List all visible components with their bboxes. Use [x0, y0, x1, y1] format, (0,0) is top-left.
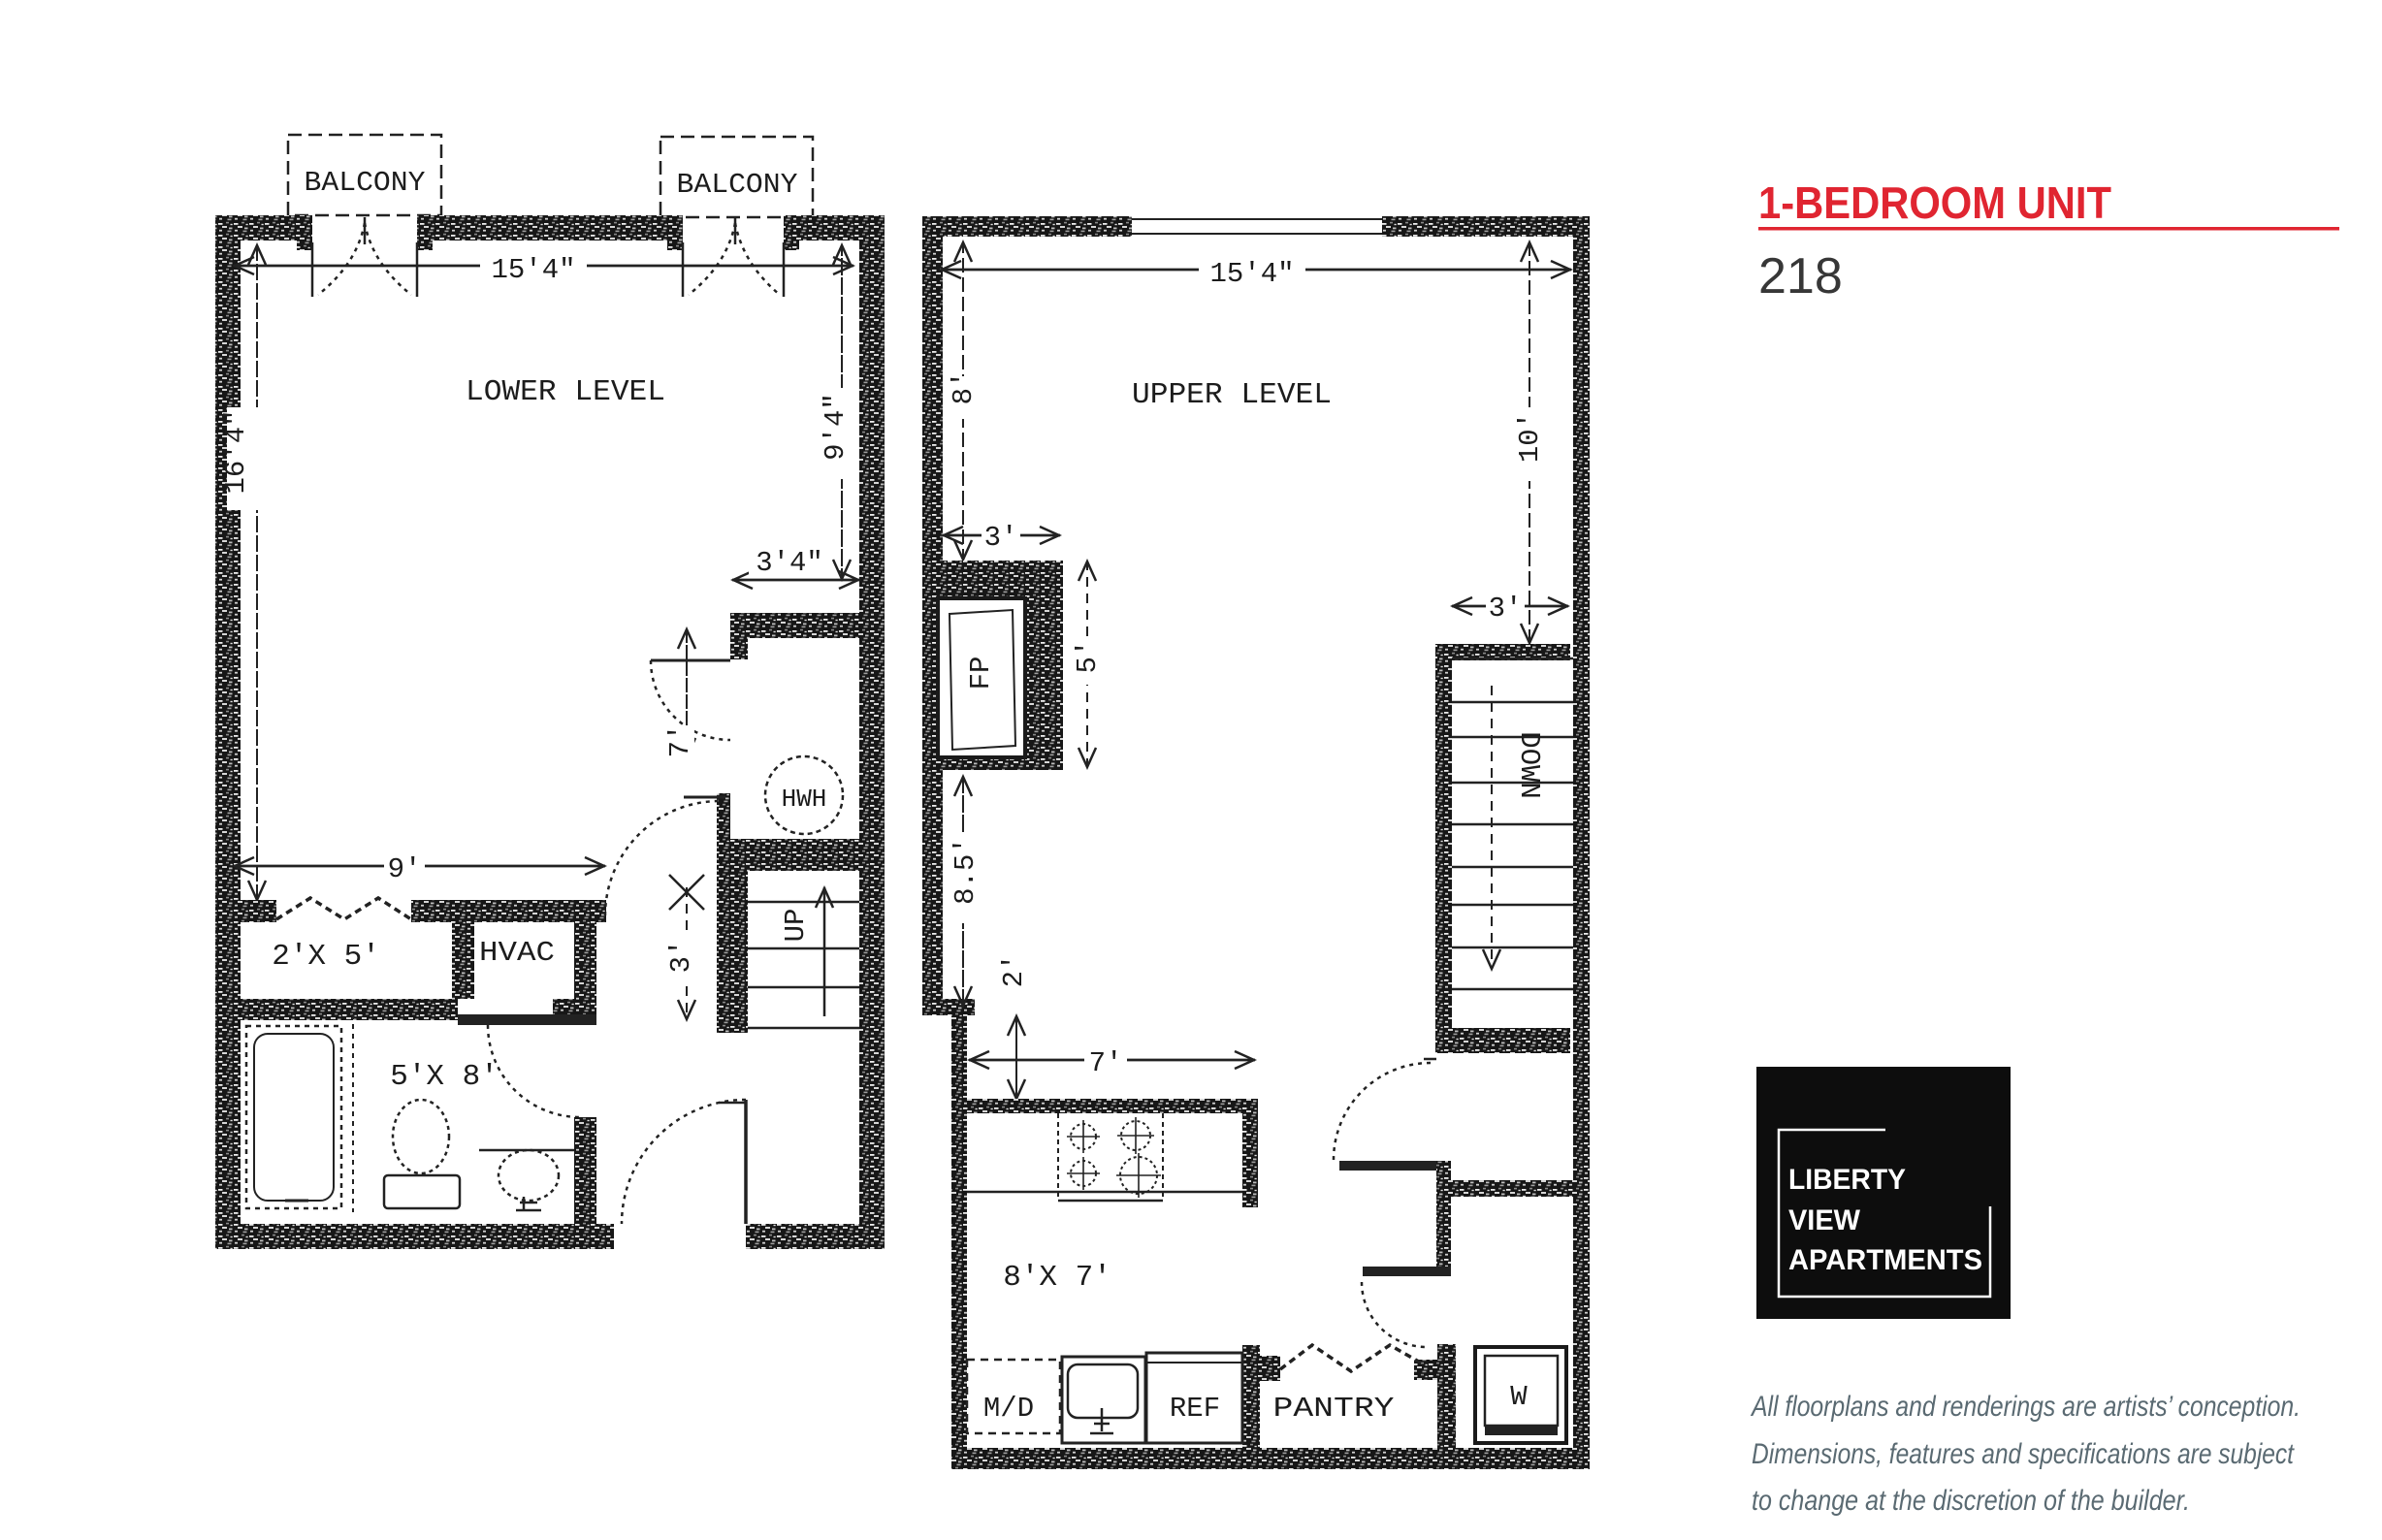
- svg-text:3'4": 3'4": [756, 547, 823, 579]
- svg-text:3': 3': [1489, 593, 1523, 625]
- svg-text:DOWN: DOWN: [1513, 731, 1545, 799]
- svg-text:BALCONY: BALCONY: [677, 169, 798, 201]
- svg-text:15'4": 15'4": [1209, 258, 1294, 290]
- svg-text:8'X 7': 8'X 7': [1003, 1261, 1111, 1295]
- svg-text:2': 2': [998, 954, 1030, 988]
- svg-text:All floorplans and renderings: All floorplans and renderings are artist…: [1750, 1391, 2301, 1423]
- svg-text:3': 3': [665, 940, 697, 974]
- svg-text:9'4": 9'4": [820, 393, 852, 461]
- svg-text:15'4": 15'4": [491, 254, 575, 286]
- svg-text:3': 3': [984, 522, 1018, 554]
- svg-text:M/D: M/D: [983, 1393, 1034, 1425]
- svg-text:5': 5': [1072, 640, 1104, 674]
- svg-text:5'X 8': 5'X 8': [390, 1060, 499, 1094]
- svg-text:8.5': 8.5': [950, 837, 982, 905]
- svg-text:1-BEDROOM UNIT: 1-BEDROOM UNIT: [1758, 177, 2111, 228]
- svg-text:2'X 5': 2'X 5': [272, 940, 380, 974]
- svg-text:9': 9': [388, 853, 422, 885]
- svg-text:HVAC: HVAC: [479, 937, 555, 969]
- svg-text:APARTMENTS: APARTMENTS: [1788, 1244, 1982, 1276]
- svg-text:REF: REF: [1170, 1393, 1220, 1425]
- svg-text:PANTRY: PANTRY: [1273, 1393, 1395, 1425]
- svg-text:7': 7': [664, 724, 696, 758]
- svg-text:HWH: HWH: [782, 785, 827, 814]
- svg-text:LOWER LEVEL: LOWER LEVEL: [466, 375, 665, 409]
- svg-text:Dimensions, features and speci: Dimensions, features and specifications …: [1752, 1438, 2295, 1470]
- svg-text:8': 8': [948, 371, 980, 405]
- svg-text:UP: UP: [780, 909, 812, 943]
- svg-text:W: W: [1510, 1381, 1528, 1413]
- svg-text:UPPER LEVEL: UPPER LEVEL: [1132, 378, 1332, 412]
- svg-text:FP: FP: [965, 657, 997, 690]
- svg-text:LIBERTY: LIBERTY: [1788, 1164, 1906, 1196]
- svg-text:VIEW: VIEW: [1788, 1204, 1861, 1236]
- svg-text:to change at the discretion of: to change at the discretion of the build…: [1752, 1485, 2190, 1517]
- svg-text:10': 10': [1514, 412, 1546, 463]
- svg-text:BALCONY: BALCONY: [305, 167, 426, 199]
- svg-text:218: 218: [1758, 248, 1843, 305]
- svg-text:16'4": 16'4": [220, 409, 252, 494]
- svg-text:7': 7': [1089, 1047, 1123, 1079]
